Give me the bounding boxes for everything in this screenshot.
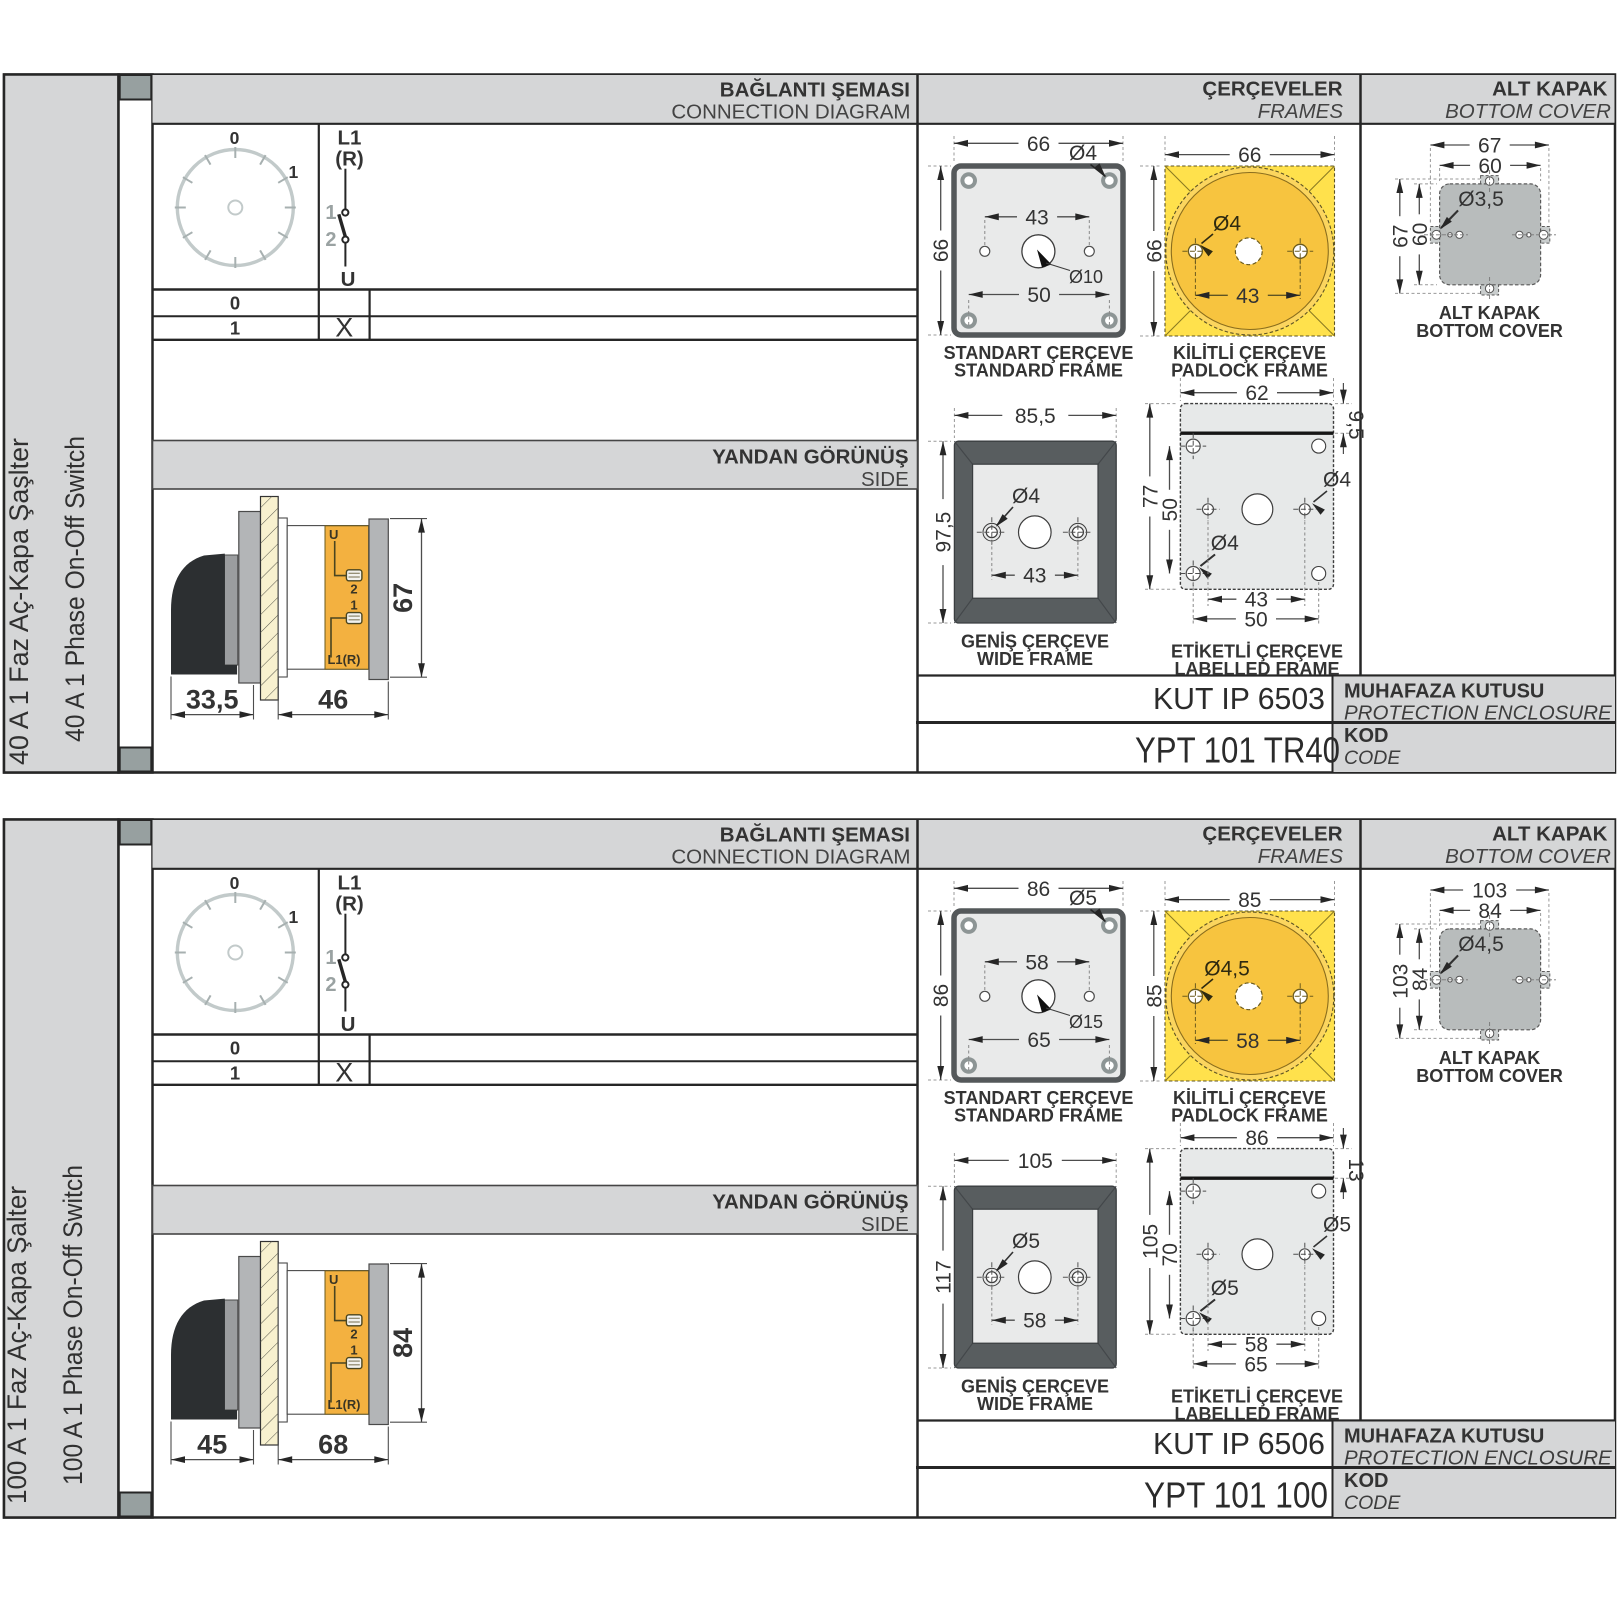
svg-text:40 A 1 Phase On-Off Switch: 40 A 1 Phase On-Off Switch (60, 436, 90, 742)
svg-text:1: 1 (325, 202, 336, 224)
svg-text:65: 65 (1027, 1029, 1050, 1052)
svg-text:58: 58 (1023, 1310, 1046, 1333)
svg-text:ALT KAPAK: ALT KAPAK (1492, 78, 1608, 101)
svg-text:66: 66 (930, 239, 953, 262)
svg-text:0: 0 (230, 293, 240, 314)
svg-text:L1(R): L1(R) (328, 1398, 361, 1412)
svg-text:BOTTOM COVER: BOTTOM COVER (1416, 1066, 1563, 1086)
svg-text:Ø4: Ø4 (1012, 485, 1040, 508)
svg-text:U: U (341, 268, 356, 291)
svg-text:67: 67 (388, 583, 418, 613)
svg-text:Ø4: Ø4 (1211, 532, 1239, 555)
svg-text:KUT IP 6503: KUT IP 6503 (1153, 682, 1325, 716)
svg-text:0: 0 (230, 128, 240, 148)
svg-text:45: 45 (197, 1430, 227, 1460)
svg-text:2: 2 (350, 1327, 357, 1342)
svg-text:KUT IP 6506: KUT IP 6506 (1153, 1427, 1325, 1461)
svg-text:CODE: CODE (1344, 1492, 1401, 1514)
svg-text:Ø5: Ø5 (1323, 1214, 1351, 1237)
svg-text:YPT 101 TR40: YPT 101 TR40 (1135, 730, 1340, 771)
svg-text:PADLOCK FRAME: PADLOCK FRAME (1171, 361, 1328, 381)
svg-text:U: U (329, 527, 338, 542)
svg-text:YANDAN GÖRÜNÜŞ: YANDAN GÖRÜNÜŞ (712, 446, 908, 469)
svg-text:66: 66 (1143, 239, 1166, 262)
svg-text:2: 2 (325, 229, 336, 251)
svg-text:SIDE: SIDE (861, 468, 909, 491)
svg-text:Ø4,5: Ø4,5 (1458, 933, 1504, 956)
svg-text:BAĞLANTI ŞEMASI: BAĞLANTI ŞEMASI (720, 823, 910, 847)
svg-text:84: 84 (1409, 967, 1432, 991)
svg-text:1: 1 (350, 1343, 357, 1358)
svg-text:STANDARD FRAME: STANDARD FRAME (954, 1106, 1123, 1126)
svg-text:58: 58 (1236, 1030, 1259, 1053)
svg-text:Ø15: Ø15 (1069, 1012, 1103, 1032)
svg-text:L1: L1 (338, 872, 362, 895)
svg-text:43: 43 (1023, 565, 1046, 588)
svg-text:X: X (335, 1058, 353, 1088)
svg-text:2: 2 (350, 582, 357, 597)
svg-text:CONNECTION DIAGRAM: CONNECTION DIAGRAM (671, 846, 910, 869)
svg-text:Ø4: Ø4 (1069, 142, 1097, 165)
svg-text:Ø5: Ø5 (1211, 1277, 1239, 1300)
svg-text:62: 62 (1245, 382, 1268, 405)
svg-text:MUHAFAZA KUTUSU: MUHAFAZA KUTUSU (1344, 1426, 1544, 1448)
svg-text:85: 85 (1143, 984, 1166, 1007)
svg-text:CONNECTION DIAGRAM: CONNECTION DIAGRAM (671, 101, 910, 124)
svg-text:Ø5: Ø5 (1069, 887, 1097, 910)
svg-text:LABELLED FRAME: LABELLED FRAME (1175, 659, 1340, 679)
svg-text:86: 86 (1245, 1127, 1268, 1150)
svg-text:100 A 1 Phase On-Off Switch: 100 A 1 Phase On-Off Switch (58, 1165, 88, 1485)
svg-text:KOD: KOD (1344, 1470, 1388, 1492)
svg-text:86: 86 (930, 984, 953, 1007)
svg-text:13: 13 (1344, 1158, 1367, 1181)
svg-text:1: 1 (289, 162, 299, 182)
svg-text:PADLOCK FRAME: PADLOCK FRAME (1171, 1106, 1328, 1126)
svg-text:Ø4: Ø4 (1323, 469, 1351, 492)
svg-text:50: 50 (1027, 284, 1050, 307)
svg-text:70: 70 (1159, 1243, 1182, 1266)
svg-text:ALT KAPAK: ALT KAPAK (1439, 1048, 1540, 1068)
svg-text:43: 43 (1236, 285, 1259, 308)
svg-text:SIDE: SIDE (861, 1213, 909, 1236)
svg-text:50: 50 (1159, 498, 1182, 521)
svg-text:0: 0 (230, 1038, 240, 1059)
svg-text:YANDAN GÖRÜNÜŞ: YANDAN GÖRÜNÜŞ (712, 1191, 908, 1214)
svg-text:U: U (341, 1013, 356, 1036)
svg-text:84: 84 (388, 1328, 418, 1358)
svg-text:46: 46 (318, 685, 348, 715)
svg-text:50: 50 (1244, 608, 1267, 631)
svg-text:97,5: 97,5 (933, 512, 956, 553)
svg-text:L1: L1 (338, 127, 362, 150)
svg-text:1: 1 (230, 317, 240, 338)
svg-text:43: 43 (1025, 206, 1048, 229)
svg-text:BAĞLANTI ŞEMASI: BAĞLANTI ŞEMASI (720, 78, 910, 102)
svg-text:9,5: 9,5 (1344, 410, 1367, 439)
svg-text:58: 58 (1025, 951, 1048, 974)
svg-text:1: 1 (350, 598, 357, 613)
svg-text:86: 86 (1027, 878, 1050, 901)
svg-text:(R): (R) (335, 147, 363, 170)
svg-text:40 A 1 Faz Aç-Kapa Şaşlter: 40 A 1 Faz Aç-Kapa Şaşlter (4, 438, 34, 765)
svg-text:PROTECTION ENCLOSURE: PROTECTION ENCLOSURE (1344, 702, 1612, 725)
svg-text:33,5: 33,5 (186, 685, 239, 715)
svg-text:X: X (335, 313, 353, 343)
svg-text:FRAMES: FRAMES (1258, 845, 1344, 868)
svg-text:85,5: 85,5 (1015, 405, 1056, 428)
svg-text:66: 66 (1238, 144, 1261, 167)
svg-text:Ø5: Ø5 (1012, 1230, 1040, 1253)
svg-text:Ø4,5: Ø4,5 (1204, 958, 1250, 981)
svg-text:BOTTOM COVER: BOTTOM COVER (1445, 845, 1611, 868)
svg-text:0: 0 (230, 873, 240, 893)
svg-text:KOD: KOD (1344, 725, 1388, 747)
svg-text:1: 1 (230, 1062, 240, 1083)
svg-text:ALT KAPAK: ALT KAPAK (1439, 303, 1540, 323)
svg-text:FRAMES: FRAMES (1258, 100, 1344, 123)
svg-text:65: 65 (1244, 1353, 1267, 1376)
svg-text:PROTECTION ENCLOSURE: PROTECTION ENCLOSURE (1344, 1447, 1612, 1470)
svg-text:BOTTOM COVER: BOTTOM COVER (1445, 100, 1611, 123)
svg-text:L1(R): L1(R) (328, 653, 361, 667)
svg-text:100 A 1 Faz Aç-Kapa Şalter: 100 A 1 Faz Aç-Kapa Şalter (2, 1186, 32, 1504)
svg-text:1: 1 (325, 947, 336, 969)
svg-text:2: 2 (325, 974, 336, 996)
svg-text:WIDE FRAME: WIDE FRAME (977, 649, 1093, 669)
svg-text:85: 85 (1238, 889, 1261, 912)
svg-text:(R): (R) (335, 892, 363, 915)
svg-text:68: 68 (318, 1430, 348, 1460)
svg-text:60: 60 (1409, 223, 1432, 246)
svg-text:U: U (329, 1272, 338, 1287)
svg-text:YPT 101 100: YPT 101 100 (1144, 1475, 1328, 1516)
svg-text:LABELLED FRAME: LABELLED FRAME (1175, 1404, 1340, 1424)
svg-text:WIDE FRAME: WIDE FRAME (977, 1394, 1093, 1414)
svg-text:ÇERÇEVELER: ÇERÇEVELER (1202, 823, 1342, 846)
svg-text:STANDARD FRAME: STANDARD FRAME (954, 361, 1123, 381)
svg-text:Ø3,5: Ø3,5 (1458, 188, 1504, 211)
svg-text:ÇERÇEVELER: ÇERÇEVELER (1202, 78, 1342, 101)
svg-text:BOTTOM COVER: BOTTOM COVER (1416, 321, 1563, 341)
svg-text:Ø4: Ø4 (1213, 213, 1241, 236)
svg-text:Ø10: Ø10 (1069, 267, 1103, 287)
svg-text:CODE: CODE (1344, 747, 1401, 769)
svg-text:1: 1 (289, 907, 299, 927)
svg-text:60: 60 (1478, 155, 1501, 178)
svg-text:66: 66 (1027, 133, 1050, 156)
svg-text:MUHAFAZA KUTUSU: MUHAFAZA KUTUSU (1344, 681, 1544, 703)
svg-text:ALT KAPAK: ALT KAPAK (1492, 823, 1608, 846)
svg-text:117: 117 (933, 1260, 956, 1293)
svg-text:105: 105 (1018, 1150, 1053, 1173)
svg-text:84: 84 (1478, 900, 1502, 923)
